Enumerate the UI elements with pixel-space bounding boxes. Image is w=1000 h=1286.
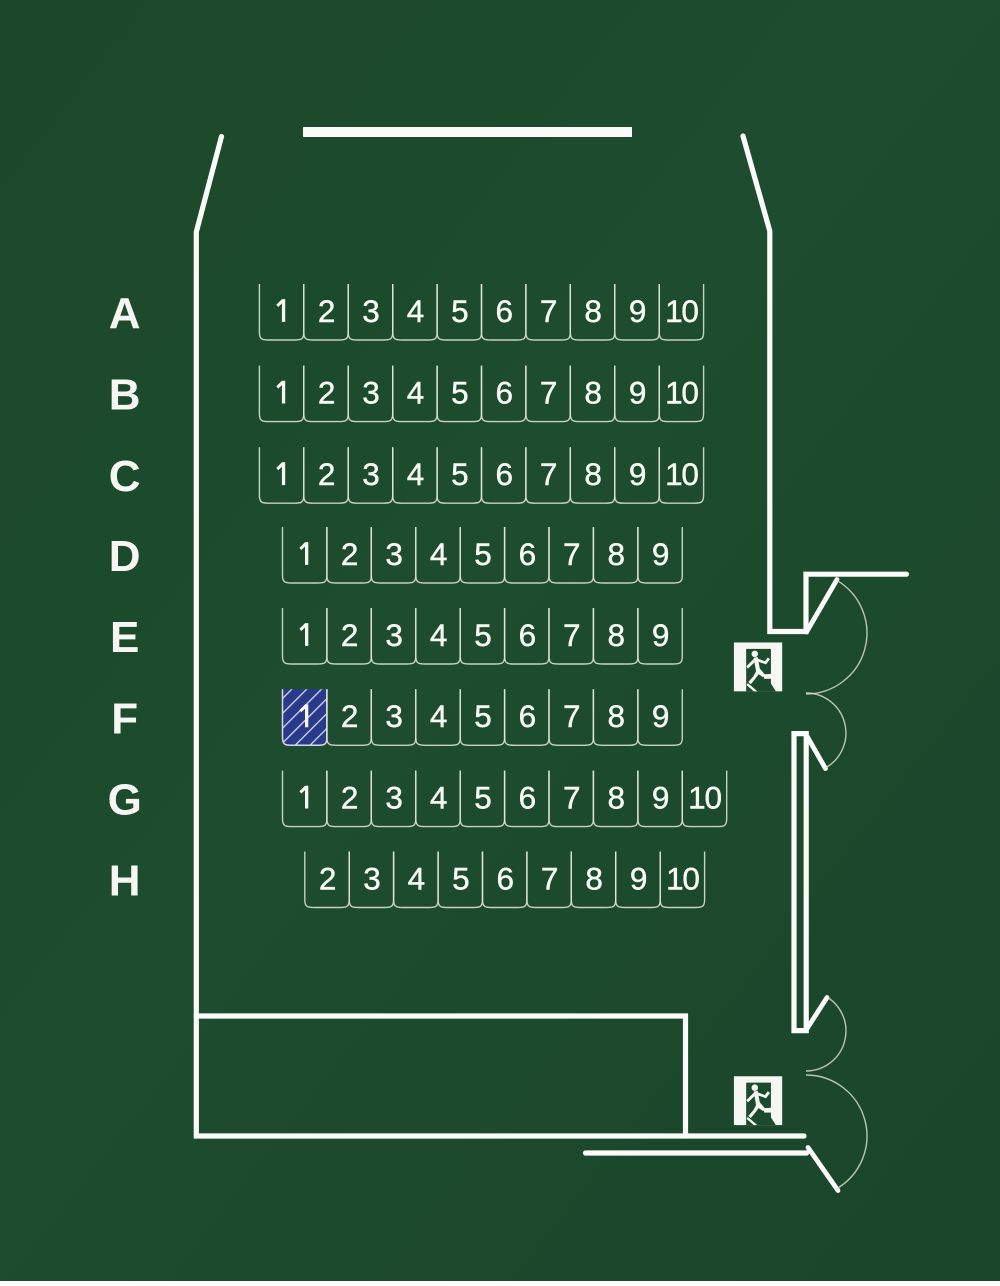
svg-text:5: 5: [452, 860, 469, 896]
svg-text:8: 8: [584, 293, 601, 329]
svg-text:4: 4: [407, 375, 424, 411]
svg-text:4: 4: [430, 698, 447, 734]
svg-text:3: 3: [362, 375, 379, 411]
svg-text:9: 9: [652, 617, 669, 653]
svg-text:9: 9: [652, 536, 669, 572]
svg-text:7: 7: [563, 617, 579, 653]
svg-text:6: 6: [519, 536, 536, 572]
svg-text:D: D: [109, 532, 141, 581]
svg-text:F: F: [111, 694, 138, 743]
svg-text:9: 9: [629, 456, 646, 492]
svg-text:C: C: [109, 452, 141, 501]
svg-text:4: 4: [407, 293, 424, 329]
svg-text:7: 7: [563, 536, 579, 572]
svg-text:3: 3: [385, 698, 402, 734]
svg-text:8: 8: [584, 456, 601, 492]
svg-text:6: 6: [497, 860, 514, 896]
svg-text:4: 4: [430, 536, 447, 572]
svg-text:3: 3: [385, 536, 402, 572]
svg-text:5: 5: [474, 780, 491, 816]
svg-text:9: 9: [652, 698, 669, 734]
svg-text:3: 3: [362, 456, 379, 492]
svg-text:5: 5: [474, 617, 491, 653]
svg-text:8: 8: [608, 536, 625, 572]
svg-text:5: 5: [451, 293, 468, 329]
svg-text:9: 9: [629, 293, 646, 329]
svg-text:5: 5: [451, 375, 468, 411]
svg-text:4: 4: [430, 617, 447, 653]
svg-text:8: 8: [608, 780, 625, 816]
svg-text:2: 2: [341, 536, 357, 572]
svg-text:2: 2: [341, 780, 357, 816]
svg-text:10: 10: [665, 293, 698, 329]
svg-text:9: 9: [652, 780, 669, 816]
svg-text:7: 7: [563, 698, 579, 734]
svg-text:10: 10: [688, 780, 721, 816]
svg-text:7: 7: [540, 293, 556, 329]
svg-text:3: 3: [385, 780, 402, 816]
svg-text:2: 2: [341, 617, 357, 653]
svg-text:8: 8: [585, 860, 602, 896]
svg-text:8: 8: [584, 375, 601, 411]
svg-text:2: 2: [319, 860, 335, 896]
svg-text:4: 4: [430, 780, 447, 816]
svg-text:9: 9: [630, 860, 647, 896]
svg-text:2: 2: [318, 293, 334, 329]
svg-text:10: 10: [665, 375, 698, 411]
svg-text:5: 5: [474, 536, 491, 572]
svg-text:9: 9: [629, 375, 646, 411]
svg-text:7: 7: [541, 860, 557, 896]
svg-text:2: 2: [318, 375, 334, 411]
svg-text:G: G: [108, 776, 142, 825]
svg-text:6: 6: [496, 293, 513, 329]
svg-text:7: 7: [540, 375, 556, 411]
svg-text:8: 8: [608, 617, 625, 653]
svg-text:3: 3: [363, 860, 380, 896]
svg-text:2: 2: [318, 456, 334, 492]
svg-text:6: 6: [519, 617, 536, 653]
svg-text:H: H: [109, 857, 141, 906]
svg-text:6: 6: [519, 698, 536, 734]
svg-text:2: 2: [341, 698, 357, 734]
svg-text:B: B: [109, 371, 141, 420]
svg-text:E: E: [110, 613, 139, 662]
svg-text:6: 6: [496, 456, 513, 492]
svg-text:4: 4: [408, 860, 425, 896]
svg-text:A: A: [109, 289, 141, 338]
svg-text:5: 5: [474, 698, 491, 734]
svg-text:8: 8: [608, 698, 625, 734]
svg-text:6: 6: [496, 375, 513, 411]
svg-text:10: 10: [666, 860, 699, 896]
svg-text:4: 4: [407, 456, 424, 492]
svg-text:3: 3: [385, 617, 402, 653]
svg-text:5: 5: [451, 456, 468, 492]
svg-text:10: 10: [665, 456, 698, 492]
svg-text:7: 7: [540, 456, 556, 492]
svg-text:3: 3: [362, 293, 379, 329]
svg-text:7: 7: [563, 780, 579, 816]
svg-text:6: 6: [519, 780, 536, 816]
